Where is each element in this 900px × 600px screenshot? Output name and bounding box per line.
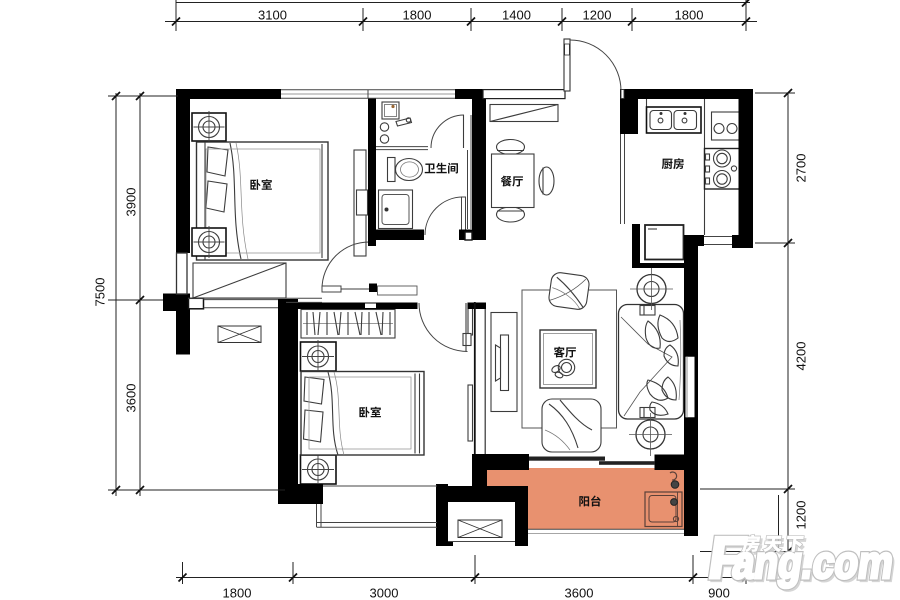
svg-text:1200: 1200 — [794, 501, 809, 530]
svg-text:2700: 2700 — [794, 154, 809, 183]
svg-text:3600: 3600 — [565, 586, 594, 600]
svg-text:4200: 4200 — [794, 342, 809, 371]
svg-text:1800: 1800 — [403, 8, 432, 23]
svg-text:1800: 1800 — [223, 586, 252, 600]
svg-text:3100: 3100 — [258, 8, 287, 23]
svg-text:1400: 1400 — [502, 8, 531, 23]
svg-text:3900: 3900 — [124, 188, 139, 217]
svg-text:7500: 7500 — [93, 278, 108, 307]
svg-text:1200: 1200 — [583, 8, 612, 23]
svg-text:3000: 3000 — [370, 586, 399, 600]
svg-text:3600: 3600 — [124, 384, 139, 413]
svg-text:1800: 1800 — [675, 8, 704, 23]
